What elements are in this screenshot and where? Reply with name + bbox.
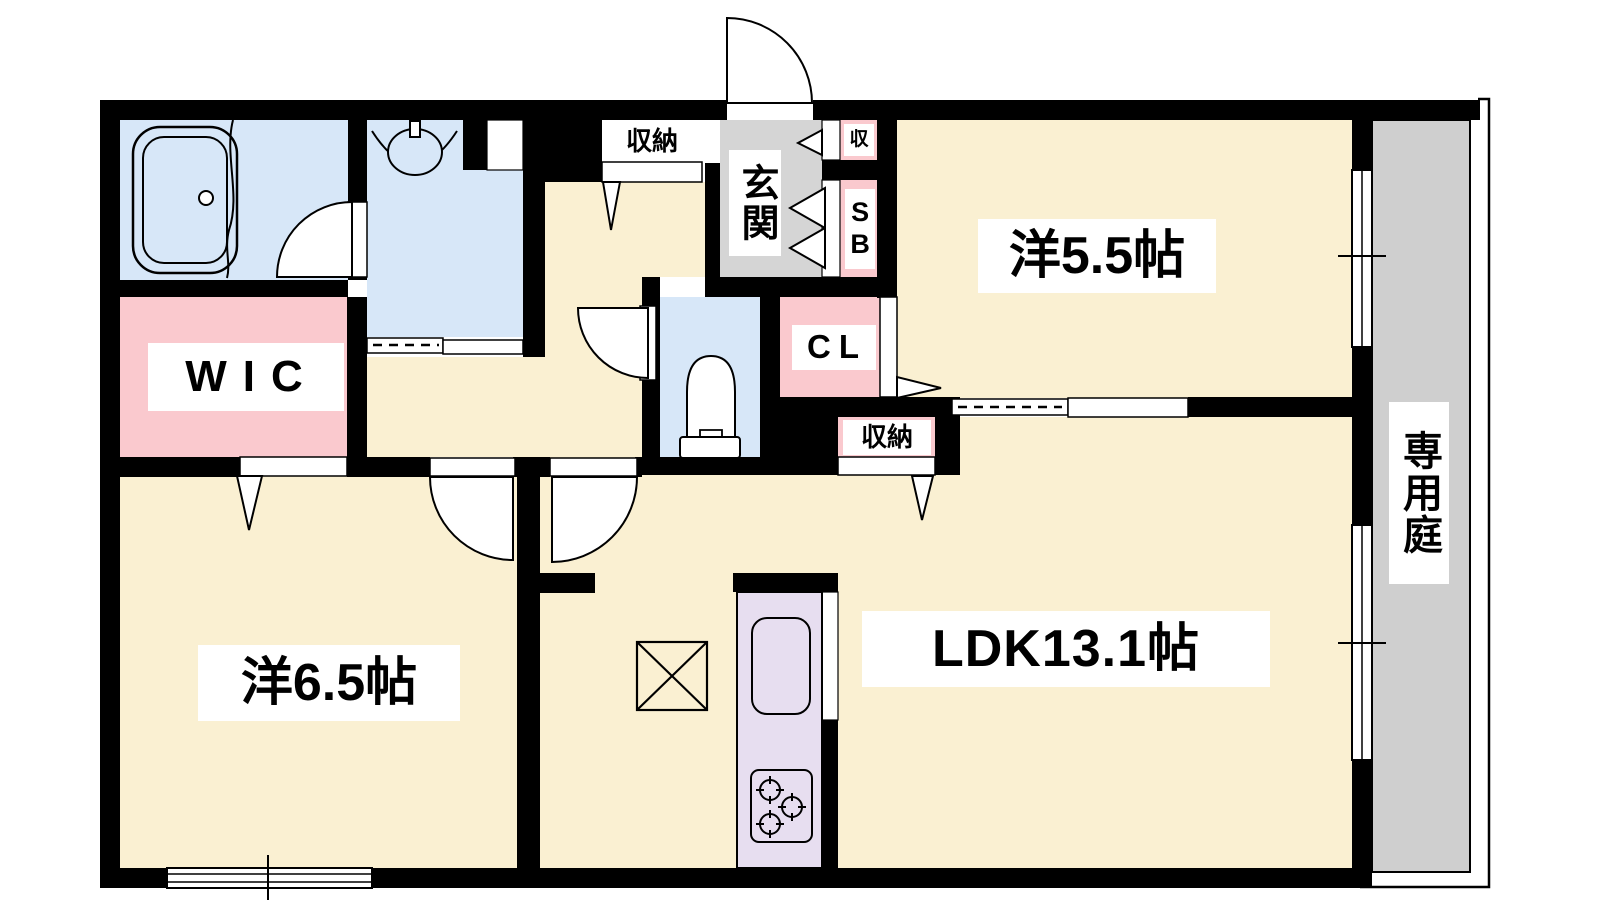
bedroom-65-label: 洋6.5帖: [198, 645, 460, 721]
bedroom55-sliding-door: [952, 398, 1188, 417]
wic-door: [240, 457, 347, 476]
ldk-label: LDK13.1帖: [862, 611, 1270, 687]
wic-label: WIC: [148, 343, 344, 411]
storage-ldk-door: [838, 457, 935, 475]
closet-label: CL: [792, 325, 876, 370]
washroom-sliding-door: [367, 338, 523, 354]
shoe-box-label: SB: [845, 189, 875, 269]
pipe-space: [487, 120, 523, 170]
floor-plan-drawing: [0, 0, 1600, 900]
storage-ldk-label: 収納: [843, 420, 931, 455]
bedroom-55-label: 洋5.5帖: [978, 219, 1216, 293]
kitchen-counter-opening: [822, 592, 838, 720]
bedroom65-door: [430, 458, 515, 476]
storage-hall-label: 収納: [607, 125, 697, 158]
private-garden-label: 専用庭: [1389, 402, 1449, 584]
entrance-door-swing: [727, 18, 812, 103]
closet-cl-door: [880, 297, 897, 397]
hallway-floor: [545, 182, 705, 277]
ldk-door: [550, 458, 637, 476]
kitchen-counter: [737, 592, 822, 868]
entrance-label: 玄関: [729, 150, 781, 256]
floor-plan: 洋5.5帖 洋6.5帖 LDK13.1帖 WIC 玄関 専用庭 CL 収納 収納…: [0, 0, 1600, 900]
storage-entrance-label: 収: [844, 124, 874, 156]
toilet: [680, 356, 740, 458]
storage-hall-door: [602, 162, 702, 182]
